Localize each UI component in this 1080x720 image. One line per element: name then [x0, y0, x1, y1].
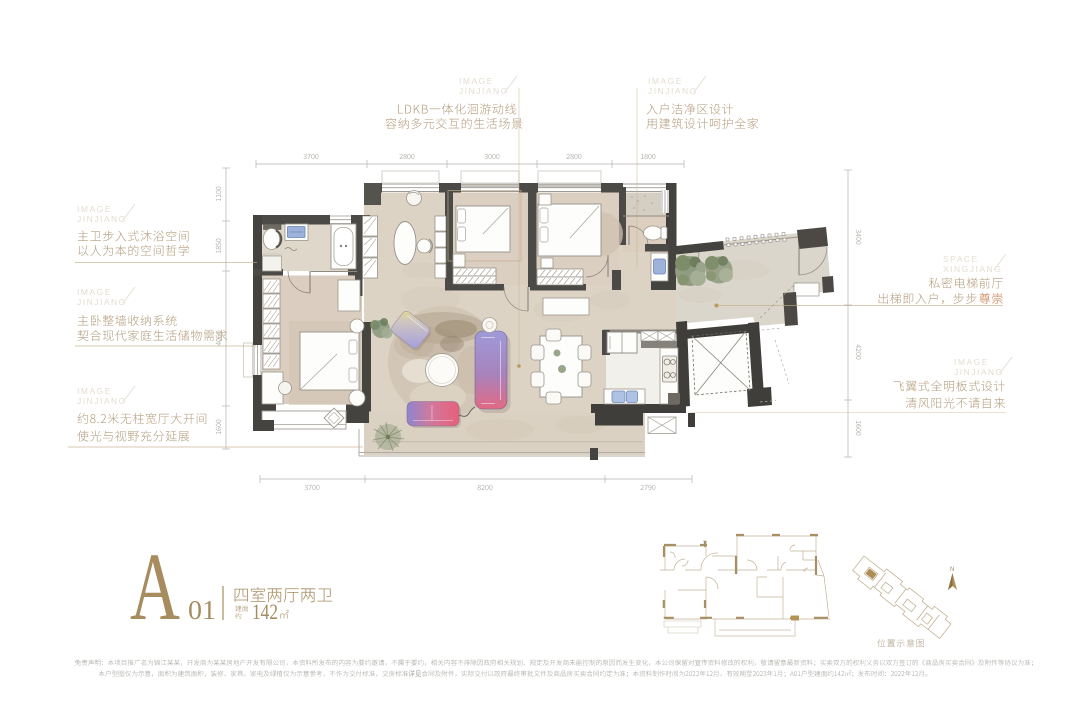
svg-text:IMAGE: IMAGE [77, 386, 112, 396]
svg-text:142: 142 [252, 599, 278, 624]
svg-text:SPACE: SPACE [943, 254, 979, 264]
svg-text:JINJIANG: JINJIANG [648, 86, 698, 96]
svg-text:1800: 1800 [640, 152, 656, 162]
svg-text:免责声明：本项目推广名为锦江某某，开发商为某某房地产开发有限: 免责声明：本项目推广名为锦江某某，开发商为某某房地产开发有限公司，本资料所发布的… [75, 657, 1038, 667]
svg-text:IMAGE: IMAGE [954, 357, 989, 367]
svg-text:2790: 2790 [640, 483, 656, 493]
svg-text:3400: 3400 [853, 229, 863, 245]
svg-text:出梯即入户，步步: 出梯即入户，步步 [877, 290, 978, 307]
svg-text:位置示意图: 位置示意图 [877, 637, 926, 650]
svg-text:契合现代家庭生活储物需求: 契合现代家庭生活储物需求 [77, 327, 228, 344]
svg-text:清风阳光不请自来: 清风阳光不请自来 [905, 395, 1006, 412]
svg-text:JINJIANG: JINJIANG [77, 396, 127, 406]
svg-text:1850: 1850 [214, 238, 224, 254]
svg-text:2800: 2800 [566, 152, 582, 162]
svg-text:JINJIANG: JINJIANG [77, 297, 127, 307]
svg-text:飞翼式全明板式设计: 飞翼式全明板式设计 [893, 378, 1006, 395]
svg-text:约: 约 [235, 611, 242, 621]
svg-text:3700: 3700 [304, 483, 320, 493]
svg-text:3000: 3000 [484, 152, 500, 162]
svg-text:1600: 1600 [853, 420, 863, 436]
svg-text:1100: 1100 [214, 186, 224, 202]
svg-text:IMAGE: IMAGE [648, 76, 683, 86]
svg-text:私密电梯前厅: 私密电梯前厅 [928, 275, 1004, 292]
svg-text:JINJIANG: JINJIANG [77, 214, 127, 224]
svg-text:JINJIANG: JINJIANG [954, 367, 1004, 377]
svg-text:用建筑设计呵护全家: 用建筑设计呵护全家 [646, 115, 759, 132]
svg-text:㎡: ㎡ [279, 607, 289, 622]
svg-text:约8.2米无柱宽厅大开间: 约8.2米无柱宽厅大开间 [77, 410, 208, 427]
svg-text:以人为本的空间哲学: 以人为本的空间哲学 [77, 242, 190, 259]
svg-text:尊崇: 尊崇 [979, 290, 1004, 307]
svg-text:本户型图仅为示意，面积为建筑面积，装修、家具、家电及绿植仅为: 本户型图仅为示意，面积为建筑面积，装修、家具、家电及绿植仅为示意参考，不作为交付… [98, 668, 931, 678]
svg-text:IMAGE: IMAGE [459, 76, 494, 86]
svg-text:3700: 3700 [303, 152, 319, 162]
svg-text:IMAGE: IMAGE [77, 204, 112, 214]
svg-text:IMAGE: IMAGE [77, 287, 112, 297]
svg-text:8200: 8200 [477, 483, 493, 493]
svg-text:4200: 4200 [853, 344, 863, 360]
svg-text:2800: 2800 [399, 152, 415, 162]
svg-text:1600: 1600 [214, 419, 224, 435]
svg-text:XINGJIANG: XINGJIANG [943, 264, 1002, 274]
svg-text:N: N [950, 567, 954, 573]
svg-text:JINJIANG: JINJIANG [459, 86, 509, 96]
svg-text:01: 01 [188, 595, 216, 625]
svg-text:A: A [130, 533, 180, 640]
svg-text:容纳多元交互的生活场景: 容纳多元交互的生活场景 [385, 115, 524, 132]
svg-text:使光与视野充分延展: 使光与视野充分延展 [77, 428, 190, 445]
